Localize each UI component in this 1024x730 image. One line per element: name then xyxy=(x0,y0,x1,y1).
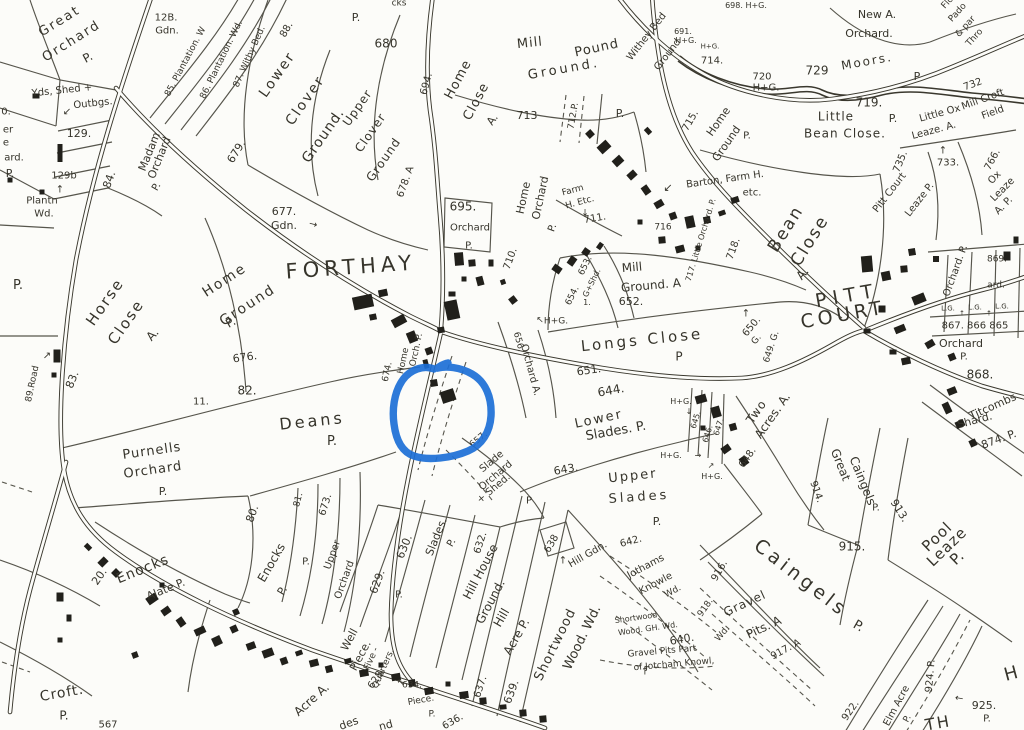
map-canvas: GreatOrchardP.12B.Gdn.85. Plantation. W8… xyxy=(0,0,1024,730)
highlight-circle xyxy=(0,0,1024,730)
annotation-layer xyxy=(0,0,1024,730)
